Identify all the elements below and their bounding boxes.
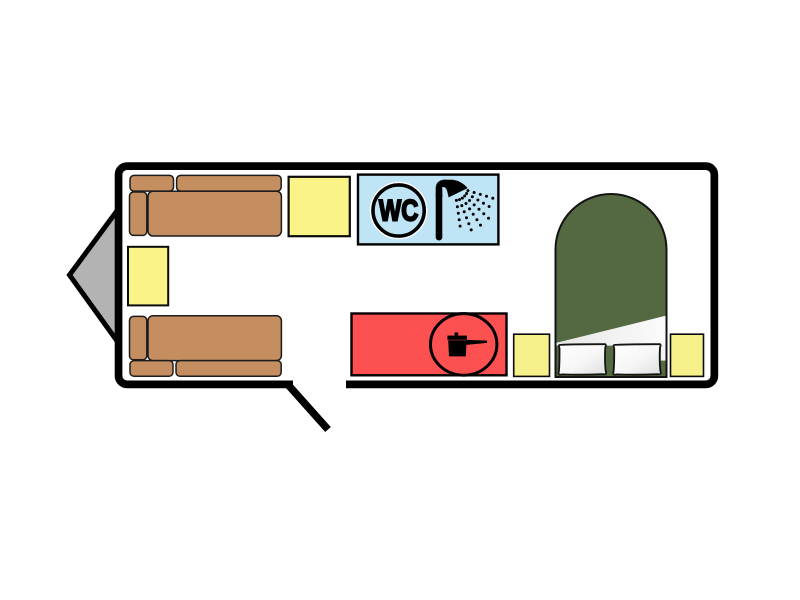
svg-text:WC: WC (379, 195, 419, 228)
